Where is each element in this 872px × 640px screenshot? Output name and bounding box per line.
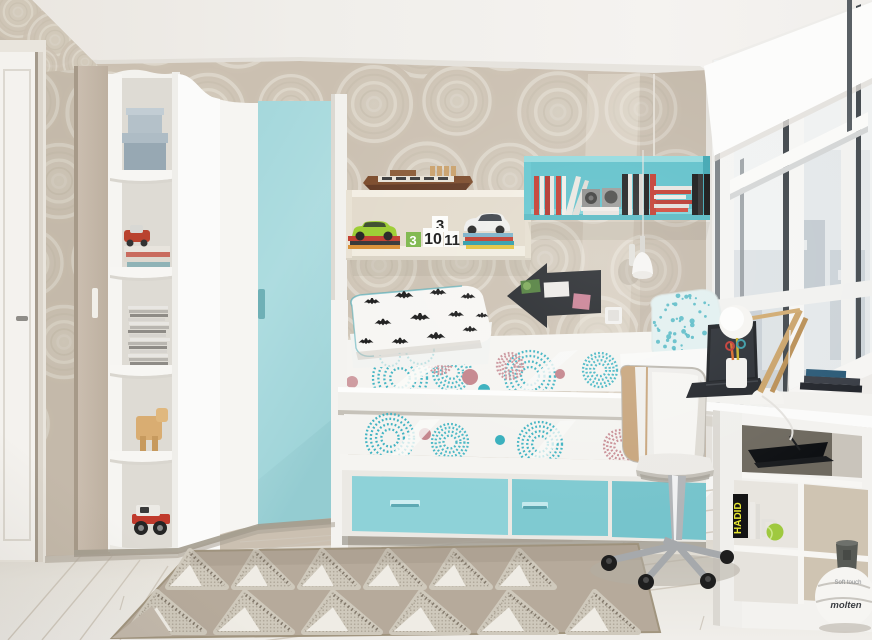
svg-text:HADID: HADID <box>733 502 744 534</box>
svg-text:Soft touch: Soft touch <box>834 580 861 586</box>
svg-text:molten: molten <box>830 600 861 611</box>
